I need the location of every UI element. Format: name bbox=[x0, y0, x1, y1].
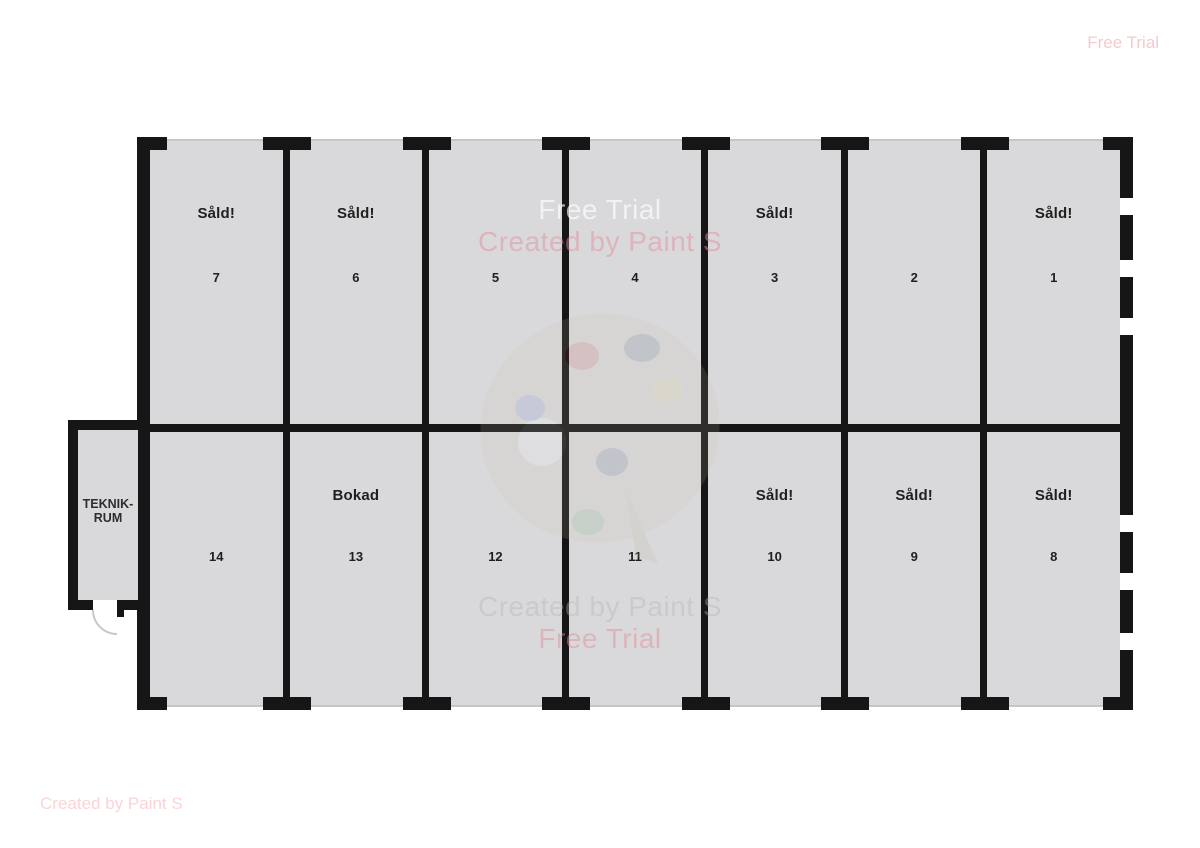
unit-cell-12: 12 bbox=[429, 432, 569, 705]
annex-door-jamb bbox=[117, 600, 124, 617]
wall-stub bbox=[821, 697, 869, 710]
wall-stub bbox=[682, 697, 730, 710]
annex-label: TEKNIK- RUM bbox=[64, 497, 152, 525]
wall-middle bbox=[137, 424, 1133, 432]
unit-cell-9: Såld!9 bbox=[848, 432, 988, 705]
unit-number: 6 bbox=[290, 270, 423, 285]
wall-stub bbox=[403, 697, 451, 710]
unit-cell-5: 5 bbox=[429, 141, 569, 424]
floorplan-image: { "watermarks": { "top_right": "Free Tri… bbox=[0, 0, 1200, 848]
unit-status: Såld! bbox=[987, 205, 1120, 222]
unit-cell-13: Bokad13 bbox=[290, 432, 430, 705]
unit-cell-7: Såld!7 bbox=[150, 141, 290, 424]
unit-number: 13 bbox=[290, 549, 423, 564]
unit-cell-11: 11 bbox=[569, 432, 709, 705]
unit-cell-6: Såld!6 bbox=[290, 141, 430, 424]
unit-cell-1: Såld!1 bbox=[987, 141, 1120, 424]
watermark-top-right: Free Trial bbox=[1087, 33, 1159, 53]
unit-number: 8 bbox=[987, 549, 1120, 564]
wall-stub bbox=[542, 697, 590, 710]
unit-number: 7 bbox=[150, 270, 283, 285]
wall-stub bbox=[137, 137, 167, 150]
unit-cell-3: Såld!3 bbox=[708, 141, 848, 424]
annex-wall-top bbox=[68, 420, 150, 430]
unit-number: 2 bbox=[848, 270, 981, 285]
unit-number: 9 bbox=[848, 549, 981, 564]
wall-stub bbox=[137, 697, 167, 710]
top-row: Såld!7Såld!654Såld!32Såld!1 bbox=[150, 141, 1120, 424]
unit-cell-2: 2 bbox=[848, 141, 988, 424]
window-gap bbox=[1120, 198, 1133, 215]
unit-status: Såld! bbox=[708, 487, 841, 504]
annex-wall-bottom-left bbox=[68, 600, 93, 610]
wall-stub bbox=[1103, 697, 1133, 710]
window-gap bbox=[1120, 260, 1133, 277]
annex-label-line1: TEKNIK- bbox=[64, 497, 152, 511]
wall-stub bbox=[961, 137, 1009, 150]
window-gap bbox=[1120, 633, 1133, 650]
unit-number: 12 bbox=[429, 549, 562, 564]
unit-status: Såld! bbox=[708, 205, 841, 222]
wall-stub bbox=[682, 137, 730, 150]
unit-cell-4: 4 bbox=[569, 141, 709, 424]
wall-stub bbox=[263, 137, 311, 150]
wall-right bbox=[1120, 137, 1133, 710]
unit-status: Bokad bbox=[290, 487, 423, 504]
window-gap bbox=[1120, 515, 1133, 532]
wall-stub bbox=[403, 137, 451, 150]
wall-stub bbox=[821, 137, 869, 150]
window-gap bbox=[1120, 573, 1133, 590]
unit-number: 14 bbox=[150, 549, 283, 564]
wall-stub bbox=[1103, 137, 1133, 150]
annex-label-line2: RUM bbox=[64, 511, 152, 525]
unit-status: Såld! bbox=[150, 205, 283, 222]
unit-number: 4 bbox=[569, 270, 702, 285]
unit-cell-10: Såld!10 bbox=[708, 432, 848, 705]
unit-status: Såld! bbox=[290, 205, 423, 222]
unit-cell-14: 14 bbox=[150, 432, 290, 705]
watermark-bottom-left: Created by Paint S bbox=[40, 794, 183, 814]
window-gap bbox=[1120, 318, 1133, 335]
unit-cell-8: Såld!8 bbox=[987, 432, 1120, 705]
unit-status: Såld! bbox=[848, 487, 981, 504]
bottom-row: 14Bokad131211Såld!10Såld!9Såld!8 bbox=[150, 432, 1120, 705]
wall-stub bbox=[961, 697, 1009, 710]
unit-status: Såld! bbox=[987, 487, 1120, 504]
unit-number: 10 bbox=[708, 549, 841, 564]
unit-number: 1 bbox=[987, 270, 1120, 285]
wall-stub bbox=[542, 137, 590, 150]
unit-number: 5 bbox=[429, 270, 562, 285]
unit-number: 3 bbox=[708, 270, 841, 285]
unit-number: 11 bbox=[569, 549, 702, 564]
wall-stub bbox=[263, 697, 311, 710]
